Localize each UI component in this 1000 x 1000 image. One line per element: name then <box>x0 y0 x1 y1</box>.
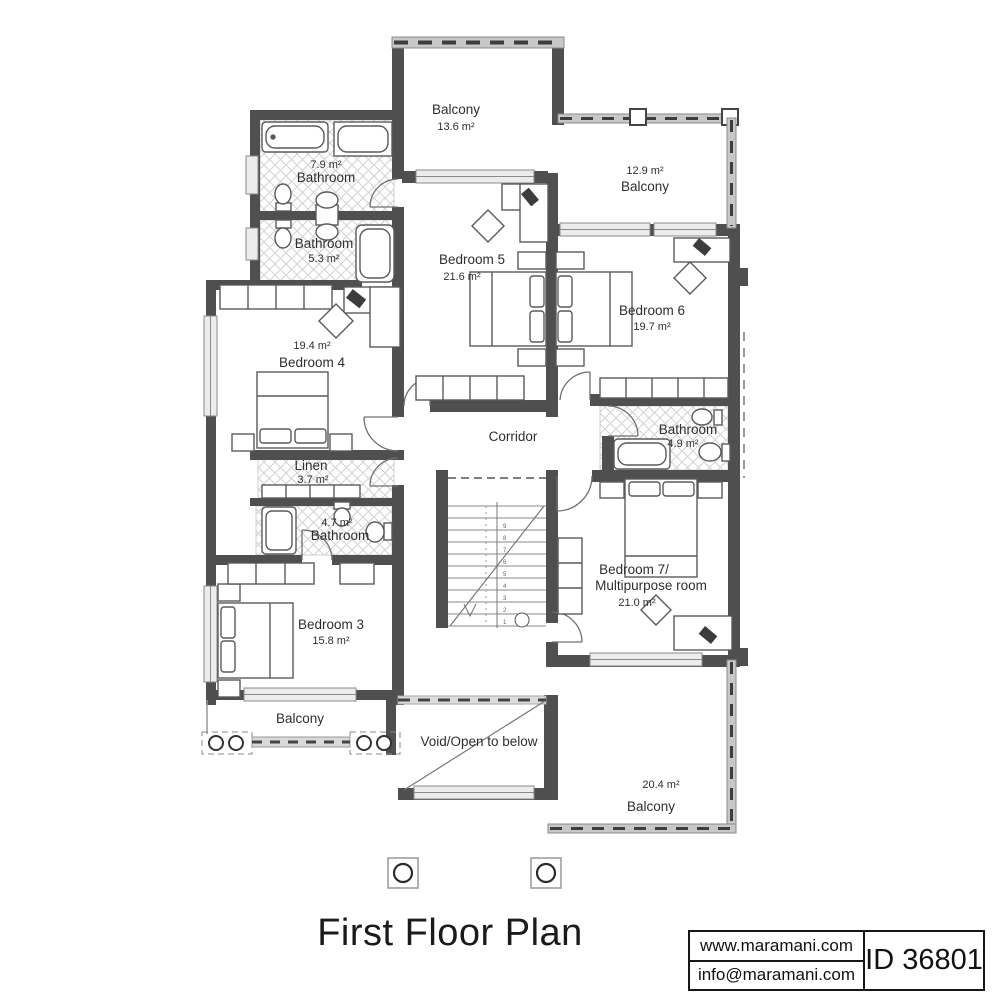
balcony-column <box>229 736 243 750</box>
stair-step-numbers: 1 2 3 4 5 6 7 8 9 <box>503 524 507 626</box>
label-balcony-right-name: Balcony <box>621 179 669 194</box>
door-bedroom4 <box>364 417 398 451</box>
branding-contact: www.maramani.com info@maramani.com <box>690 932 865 989</box>
nightstand <box>518 349 546 366</box>
label-bathroom-mid-name: Bathroom <box>295 236 354 251</box>
window-bedroom3-left <box>204 586 217 682</box>
label-bedroom7-name-2: Multipurpose room <box>595 578 707 593</box>
label-balcony-bottom-right-name: Balcony <box>627 799 675 814</box>
label-balcony-top-area: 13.6 m² <box>437 121 475 133</box>
balcony-column <box>209 736 223 750</box>
bedroom3-closet <box>228 563 314 584</box>
label-bedroom6-area: 19.7 m² <box>633 321 671 333</box>
window-void-bottom <box>414 786 534 799</box>
nightstand <box>556 252 584 269</box>
window-bathroom-left-2 <box>246 228 258 260</box>
nightstand <box>218 680 240 697</box>
stair-number: 2 <box>503 608 507 614</box>
bedroom5-closet <box>416 376 524 400</box>
floor-plan-drawing: 1 2 3 4 5 6 7 8 9 Balcony 13.6 m² 12.9 m… <box>0 0 1000 1000</box>
bedroom3-closet-2 <box>340 563 374 584</box>
label-balcony-bottom-left: Balcony <box>276 711 324 726</box>
nightstand <box>556 349 584 366</box>
label-bedroom5-name: Bedroom 5 <box>439 252 505 267</box>
toilet <box>275 220 291 248</box>
bedroom4-bed <box>257 372 328 448</box>
stair-number: 8 <box>503 536 507 542</box>
plan-id-badge: ID 36801 <box>865 932 983 989</box>
shower-tub <box>356 225 394 282</box>
door-bedroom6 <box>560 372 590 400</box>
stair-number: 4 <box>503 584 507 590</box>
website-text: www.maramani.com <box>690 932 863 962</box>
window-bedroom6-top-2 <box>654 223 716 236</box>
bathtub <box>262 122 328 152</box>
label-bedroom5-area: 21.6 m² <box>443 271 481 283</box>
nightstand <box>698 482 722 498</box>
shower <box>334 122 392 156</box>
label-linen-area: 3.7 m² <box>297 474 329 486</box>
label-bathroom-47-name: Bathroom <box>311 528 370 543</box>
shower-tub <box>614 439 670 469</box>
stair-number: 6 <box>503 560 507 566</box>
balcony-column <box>377 736 391 750</box>
railing-balcony-right-side <box>727 118 736 228</box>
label-bathroom-49-name: Bathroom <box>659 422 718 437</box>
window-bathroom-left-1 <box>246 156 258 194</box>
window-bedroom5-top <box>416 170 534 183</box>
label-bedroom3-area: 15.8 m² <box>312 635 350 647</box>
branding-box: www.maramani.com info@maramani.com ID 36… <box>688 930 985 991</box>
void-top-dashed-edge <box>398 696 546 704</box>
window-bedroom3-bottom <box>244 688 356 701</box>
label-balcony-right-area: 12.9 m² <box>626 165 664 177</box>
bedroom3-bed <box>218 603 293 678</box>
label-corridor: Corridor <box>489 429 538 444</box>
label-balcony-bottom-right-area: 20.4 m² <box>642 779 680 791</box>
shower <box>262 507 296 554</box>
label-bathroom-49-area: 4.9 m² <box>667 438 699 450</box>
bedroom7-wardrobe <box>558 538 582 614</box>
nightstand <box>232 434 254 451</box>
window-bedroom4-left <box>204 316 217 416</box>
window-bedroom7-bottom <box>590 653 702 666</box>
linen-shelves <box>262 485 360 498</box>
window-bedroom6-top-1 <box>560 223 650 236</box>
railing-balcony-top <box>392 37 564 48</box>
label-balcony-top-name: Balcony <box>432 102 480 117</box>
nightstand <box>330 434 352 451</box>
sink <box>699 443 730 461</box>
balcony-column <box>357 736 371 750</box>
label-bedroom7-name-1: Bedroom 7/ <box>599 562 669 577</box>
door-bedroom7 <box>557 476 592 511</box>
page-title: First Floor Plan <box>200 912 700 955</box>
toilet <box>275 184 291 211</box>
sink <box>366 522 392 542</box>
label-bedroom6-name: Bedroom 6 <box>619 303 685 318</box>
email-text: info@maramani.com <box>690 962 863 990</box>
chair <box>674 262 706 294</box>
label-bedroom4-area: 19.4 m² <box>293 340 331 352</box>
label-bathroom-mid-area: 5.3 m² <box>308 253 340 265</box>
bedroom4-closet <box>220 285 332 309</box>
label-bathroom-top-name: Bathroom <box>297 170 356 185</box>
bedroom5-bed <box>470 272 546 346</box>
railing-balcony-bottom-left <box>202 700 400 754</box>
label-void: Void/Open to below <box>420 734 537 749</box>
staircase: 1 2 3 4 5 6 7 8 9 <box>448 502 546 628</box>
chair <box>472 210 504 242</box>
stair-start-marker <box>515 613 529 627</box>
stair-number: 5 <box>503 572 507 578</box>
stair-number: 3 <box>503 596 507 602</box>
nightstand <box>218 584 240 601</box>
stair-number: 1 <box>503 620 507 626</box>
label-bedroom3-name: Bedroom 3 <box>298 617 364 632</box>
nightstand <box>600 482 624 498</box>
bedroom6-closet <box>600 378 728 398</box>
column-markers <box>388 858 561 888</box>
label-bedroom7-area: 21.0 m² <box>618 597 656 609</box>
railing-balcony-right-top <box>558 109 738 125</box>
label-bedroom4-name: Bedroom 4 <box>279 355 346 370</box>
floor-plan-page: 1 2 3 4 5 6 7 8 9 Balcony 13.6 m² 12.9 m… <box>0 0 1000 1000</box>
label-linen-name: Linen <box>294 458 327 473</box>
nightstand <box>518 252 546 269</box>
stair-number: 9 <box>503 524 507 530</box>
sink <box>316 192 338 240</box>
